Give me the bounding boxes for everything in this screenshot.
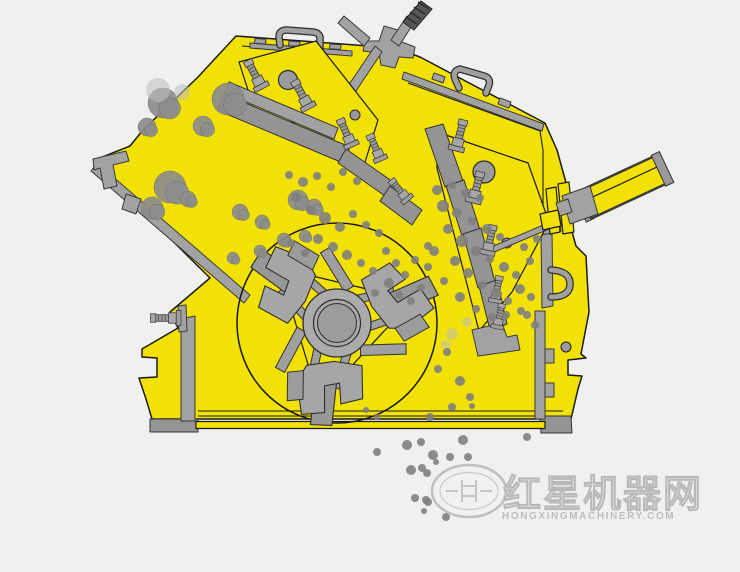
crushed-particle [440,277,448,285]
crushed-particle [428,450,438,460]
crushed-particle [434,365,442,373]
crushed-particle [353,177,361,185]
crushed-particle [327,183,335,191]
crushed-particle [533,235,541,243]
crushed-particle [432,185,442,195]
crushed-particle [406,465,416,475]
feed-rock [260,219,270,229]
crushed-particle [411,256,419,264]
crushed-particle [452,208,462,218]
feed-rock-faint [174,84,190,100]
watermark-english-text: HONGXINGMACHINERY.COM [502,511,675,522]
crushed-particle [443,224,453,234]
crushed-particle [478,281,486,289]
crushed-particle [313,234,323,244]
crushed-particle [402,440,412,450]
crushed-particle [313,172,321,180]
crushed-particle [488,313,496,321]
feed-rock [303,234,312,243]
crushed-particle [496,233,504,241]
crushed-particle [363,407,369,413]
wall-hole [561,342,571,352]
feed-rock [258,249,267,258]
crushed-particle [429,246,439,256]
feed-rock [145,124,158,137]
watermark-chinese-text: 红星机器网 [503,474,703,516]
crushed-particle [469,403,475,409]
crushed-particle [291,192,301,202]
crushed-particle [384,278,394,288]
crushed-particle [319,212,331,224]
crushed-particle [515,284,525,294]
crushed-particle [463,268,473,278]
crushed-particle [458,435,468,445]
rotor-hub [303,289,371,357]
diagram-canvas: 红星机器网 HONGXINGMACHINERY.COM [0,0,740,572]
crushed-particle [306,205,316,215]
hongxing-logo-icon [432,465,506,517]
crushed-particle [342,250,352,260]
crushed-particle [527,293,535,301]
crushed-particle [349,210,357,218]
crushed-particle [468,217,476,225]
crushed-particle [424,263,432,271]
frame-skid [196,422,545,429]
crushed-particle [339,168,347,176]
crushed-particle [375,229,383,237]
crushed-particle [395,291,403,299]
tension-rod-thread [403,1,432,30]
crushed-particle [531,321,539,329]
crushed-particle [446,453,454,461]
crushed-particle [461,188,471,198]
crushed-particle [437,200,449,212]
crushed-particle [382,247,390,255]
crushed-particle [285,171,293,179]
crushed-particle [373,448,381,456]
watermark: 红星机器网 HONGXINGMACHINERY.COM [432,465,703,522]
crushed-particle [448,181,456,189]
crushed-particle [466,393,474,401]
feed-rock [149,204,165,220]
crushed-particle [482,224,492,234]
crushed-particle [486,255,494,263]
feed-rock [238,209,250,221]
crushed-particle [371,289,379,297]
feed-rock-faint [462,317,472,327]
crushed-particle [433,459,439,465]
crushed-particle [298,177,308,187]
feed-rock-faint [146,78,170,102]
crushed-particle [523,311,531,319]
apron1-hole [350,110,360,120]
crushed-particle [455,292,465,302]
crushed-particle [502,311,510,319]
crushed-particle [362,221,370,229]
crushed-particle [455,376,465,386]
crushed-particle [512,271,520,279]
crushed-particle [335,222,345,232]
crushed-particle [499,262,509,272]
crushed-particle [423,469,431,477]
crushed-particle [464,453,472,461]
feed-rock [200,122,214,136]
feed-rock [224,93,247,116]
crushed-particle [456,235,468,247]
crushed-particle [374,414,380,420]
crushed-particle [417,284,425,292]
crushed-particle [523,433,531,441]
crushed-particle [417,438,425,446]
crushed-particle [328,242,338,252]
crushed-particle [476,194,484,202]
crushed-particle [426,413,434,421]
crushed-particle [491,288,501,298]
crushed-particle [421,508,427,514]
crushed-particle [520,243,528,251]
crushed-particle [369,267,377,275]
crushed-particle [357,259,365,267]
crushed-particle [448,403,456,411]
ridge-arm [338,16,370,46]
left-wall-bolt [151,310,181,325]
crushed-particle [411,494,419,502]
crushed-particle [401,271,409,279]
crushed-particle [526,257,534,265]
crushed-particle [287,239,295,247]
crushed-particle [392,259,400,267]
impact-crusher-diagram: 红星机器网 HONGXINGMACHINERY.COM [0,0,740,572]
feed-rock [231,256,240,265]
feed-rock-faint [446,328,458,340]
crushed-particle [424,498,432,506]
crushed-particle [504,297,512,305]
crushed-particle [407,297,415,305]
feed-rock [186,196,198,208]
crushed-particle [450,256,460,266]
crushed-particle [301,249,309,257]
crushed-particle [472,305,480,313]
crushed-particle [471,246,481,256]
crushed-particle [443,348,451,356]
